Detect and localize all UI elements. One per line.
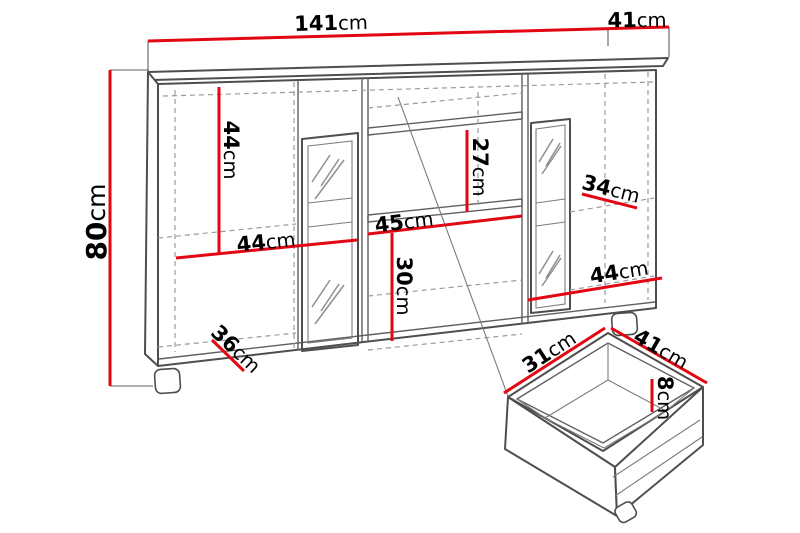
label-total-height: 80cm	[80, 183, 113, 260]
label-niche-height: 27cm	[468, 138, 492, 197]
diagram-canvas: 141cm 41cm 80cm 44cm 44cm 27cm 45cm 30cm…	[0, 0, 800, 533]
label-lower-compartment-height: 30cm	[392, 257, 416, 316]
label-total-width: 141cm	[294, 10, 368, 36]
cabinet-right-foot	[611, 312, 637, 336]
cabinet-left-side-panel	[145, 72, 158, 366]
furniture-dimension-diagram: 141cm 41cm 80cm 44cm 44cm 27cm 45cm 30cm…	[0, 0, 800, 533]
cabinet-left-foot	[154, 368, 181, 394]
dim-line-total-width-depth	[148, 27, 669, 41]
label-left-compartment-height: 44cm	[219, 121, 243, 180]
label-total-depth: 41cm	[607, 7, 666, 32]
label-drawer-height: 8cm	[653, 376, 677, 420]
